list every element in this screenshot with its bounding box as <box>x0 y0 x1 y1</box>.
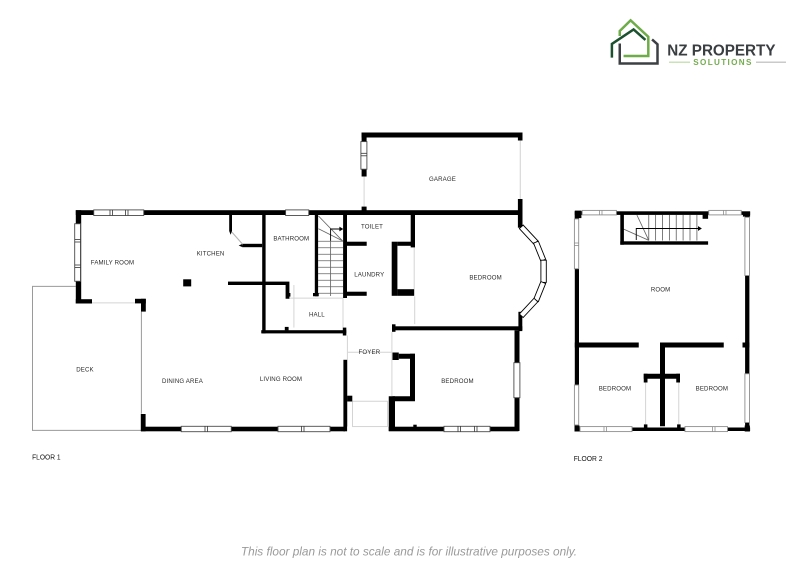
svg-text:LIVING ROOM: LIVING ROOM <box>260 376 302 383</box>
svg-text:FLOOR 2: FLOOR 2 <box>574 454 603 463</box>
svg-text:HALL: HALL <box>309 312 325 319</box>
svg-text:FLOOR 1: FLOOR 1 <box>32 453 61 462</box>
svg-text:LAUNDRY: LAUNDRY <box>354 272 384 279</box>
svg-text:FOYER: FOYER <box>359 349 381 356</box>
svg-text:This floor plan is not to scal: This floor plan is not to scale and is f… <box>241 545 577 559</box>
svg-text:BEDROOM: BEDROOM <box>696 385 729 392</box>
svg-text:BEDROOM: BEDROOM <box>441 378 474 385</box>
svg-text:SOLUTIONS: SOLUTIONS <box>693 57 752 67</box>
svg-text:BEDROOM: BEDROOM <box>599 385 632 392</box>
svg-text:DECK: DECK <box>76 367 94 374</box>
svg-text:KITCHEN: KITCHEN <box>197 251 225 258</box>
svg-text:BEDROOM: BEDROOM <box>469 275 502 282</box>
svg-text:FAMILY ROOM: FAMILY ROOM <box>91 260 134 267</box>
svg-text:DINING AREA: DINING AREA <box>162 378 204 385</box>
svg-text:GARAGE: GARAGE <box>429 176 456 183</box>
svg-text:BATHROOM: BATHROOM <box>273 235 309 242</box>
svg-text:TOILET: TOILET <box>361 223 383 230</box>
svg-text:ROOM: ROOM <box>651 287 671 294</box>
